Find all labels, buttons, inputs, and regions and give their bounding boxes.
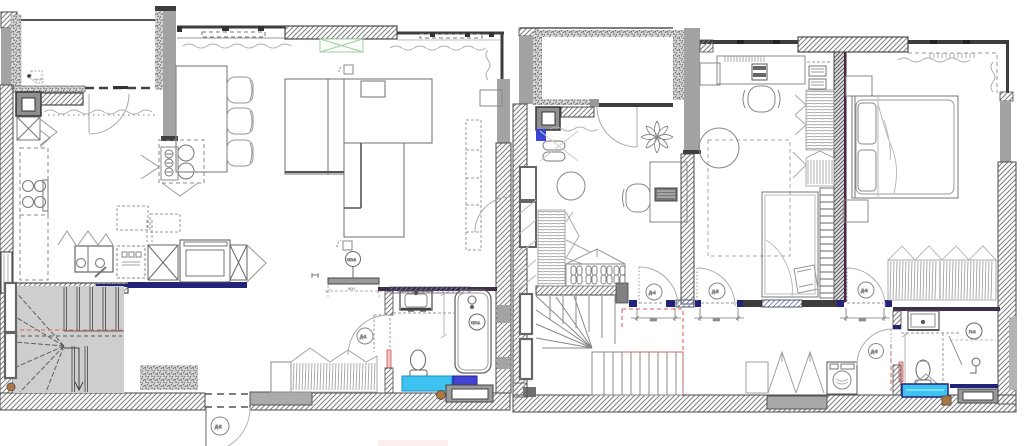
svg-text:Д-5: Д-5: [712, 289, 719, 294]
svg-text:Д-4: Д-4: [649, 290, 656, 295]
svg-text:800: 800: [650, 317, 657, 322]
svg-text:Д-3: Д-3: [871, 349, 878, 354]
svg-text:СП-2: СП-2: [347, 258, 356, 262]
svg-text:800: 800: [859, 317, 866, 322]
svg-text:800: 800: [713, 317, 720, 322]
svg-text:СП-1: СП-1: [471, 321, 480, 325]
svg-text:Д-6: Д-6: [861, 288, 868, 293]
svg-text:900: 900: [348, 286, 355, 291]
svg-text:Д-2: Д-2: [215, 424, 222, 429]
svg-text:Д-1: Д-1: [360, 334, 367, 339]
svg-text:П-2: П-2: [969, 329, 976, 334]
